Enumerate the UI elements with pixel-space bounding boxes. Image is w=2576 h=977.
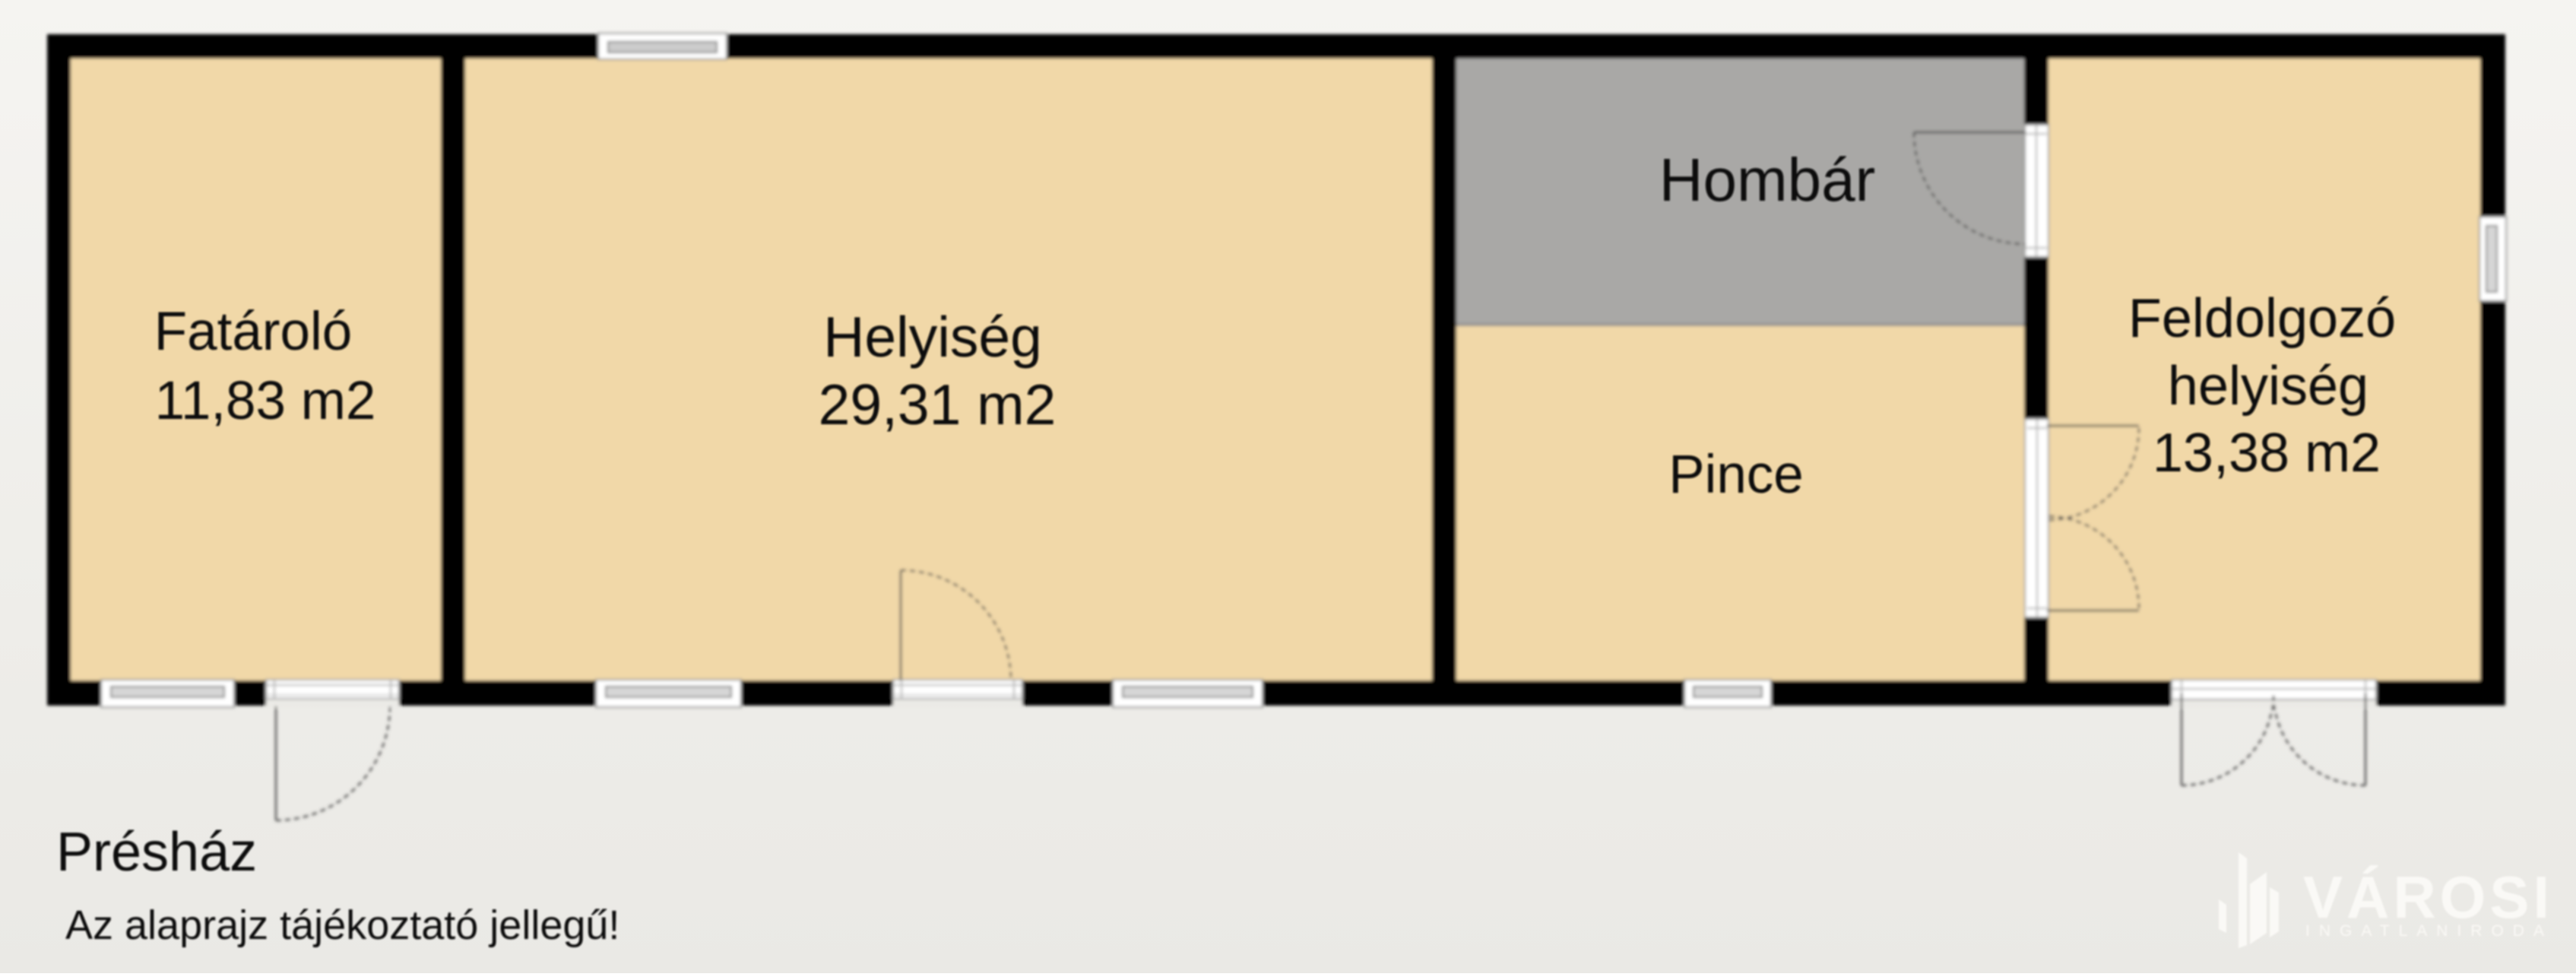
svg-text:INGATLANIRODA: INGATLANIRODA	[2305, 922, 2553, 940]
svg-text:helyiség: helyiség	[2168, 356, 2368, 417]
svg-text:VÁROSI: VÁROSI	[2303, 864, 2553, 931]
svg-text:Présház: Présház	[56, 822, 257, 883]
svg-text:29,31 m2: 29,31 m2	[819, 373, 1057, 436]
svg-text:Feldolgozó: Feldolgozó	[2128, 288, 2396, 349]
svg-text:11,83 m2: 11,83 m2	[155, 371, 376, 431]
svg-text:Pince: Pince	[1668, 445, 1804, 505]
svg-text:Fatároló: Fatároló	[154, 302, 352, 362]
svg-text:Helyiség: Helyiség	[823, 305, 1042, 369]
svg-text:Az alaprajz tájékoztató jelleg: Az alaprajz tájékoztató jellegű!	[65, 902, 619, 948]
svg-text:13,38 m2: 13,38 m2	[2153, 423, 2381, 484]
svg-text:Hombár: Hombár	[1659, 146, 1876, 214]
